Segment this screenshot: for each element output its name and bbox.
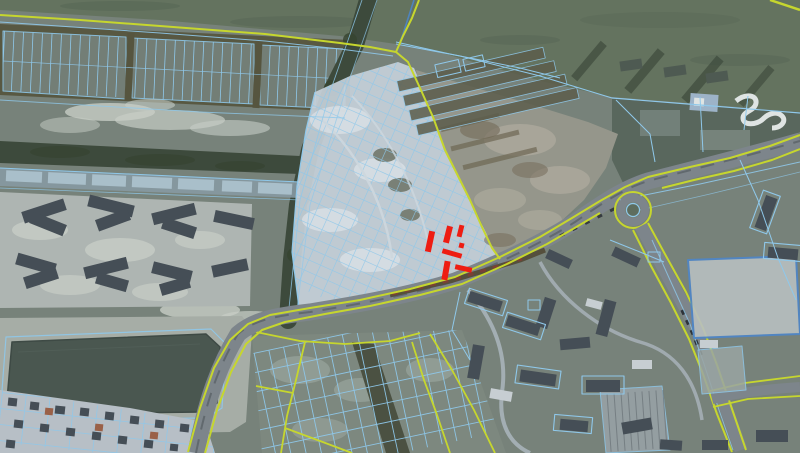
layer-construction-site xyxy=(0,192,255,308)
map-viewport xyxy=(0,0,800,453)
layer-roundabout xyxy=(615,192,651,228)
map-canvas[interactable] xyxy=(0,0,800,453)
